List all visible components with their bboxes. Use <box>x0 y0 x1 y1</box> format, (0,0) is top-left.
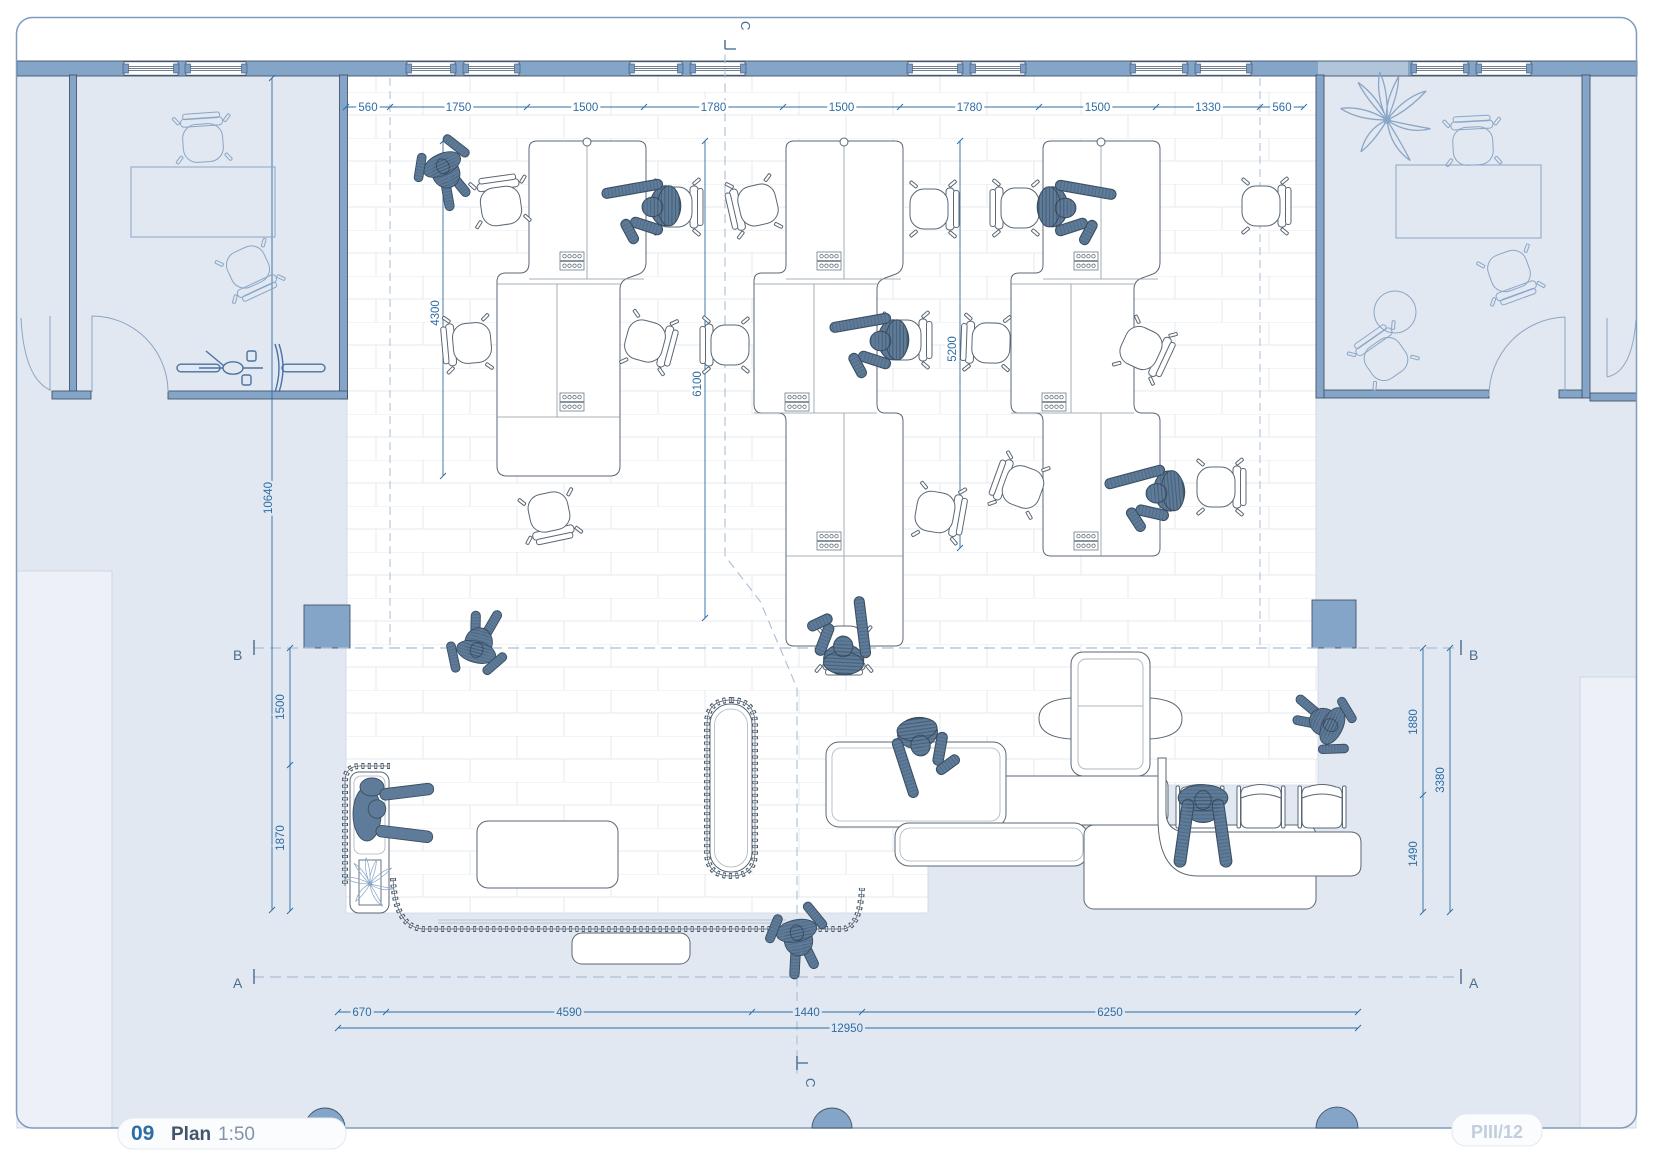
svg-text:A: A <box>233 975 243 991</box>
svg-text:1750: 1750 <box>446 102 472 114</box>
svg-text:1330: 1330 <box>1195 102 1221 114</box>
svg-text:4300: 4300 <box>430 300 442 326</box>
svg-text:A: A <box>1469 975 1479 991</box>
svg-text:Plan: Plan <box>171 1124 211 1145</box>
svg-text:B: B <box>233 647 242 663</box>
svg-text:C: C <box>803 1078 818 1087</box>
svg-text:6100: 6100 <box>692 371 704 397</box>
svg-text:09: 09 <box>131 1122 154 1145</box>
svg-text:1:50: 1:50 <box>218 1124 255 1145</box>
svg-text:1500: 1500 <box>1085 102 1111 114</box>
svg-text:1500: 1500 <box>573 102 599 114</box>
svg-text:PIII/12: PIII/12 <box>1471 1122 1523 1142</box>
svg-text:5200: 5200 <box>947 336 959 362</box>
svg-text:C: C <box>738 21 753 30</box>
svg-text:4590: 4590 <box>556 1007 582 1019</box>
svg-text:560: 560 <box>358 102 377 114</box>
svg-text:560: 560 <box>1272 102 1291 114</box>
svg-text:1500: 1500 <box>275 694 287 720</box>
svg-text:670: 670 <box>352 1007 371 1019</box>
svg-text:3380: 3380 <box>1435 767 1447 793</box>
svg-text:10640: 10640 <box>263 482 275 514</box>
svg-text:1500: 1500 <box>829 102 855 114</box>
svg-text:1440: 1440 <box>794 1007 820 1019</box>
svg-text:1870: 1870 <box>275 825 287 851</box>
svg-text:B: B <box>1469 647 1478 663</box>
svg-text:1780: 1780 <box>701 102 727 114</box>
svg-text:1780: 1780 <box>957 102 983 114</box>
svg-text:12950: 12950 <box>831 1023 863 1035</box>
svg-text:1880: 1880 <box>1408 709 1420 735</box>
svg-text:1490: 1490 <box>1408 841 1420 867</box>
svg-text:6250: 6250 <box>1097 1007 1123 1019</box>
